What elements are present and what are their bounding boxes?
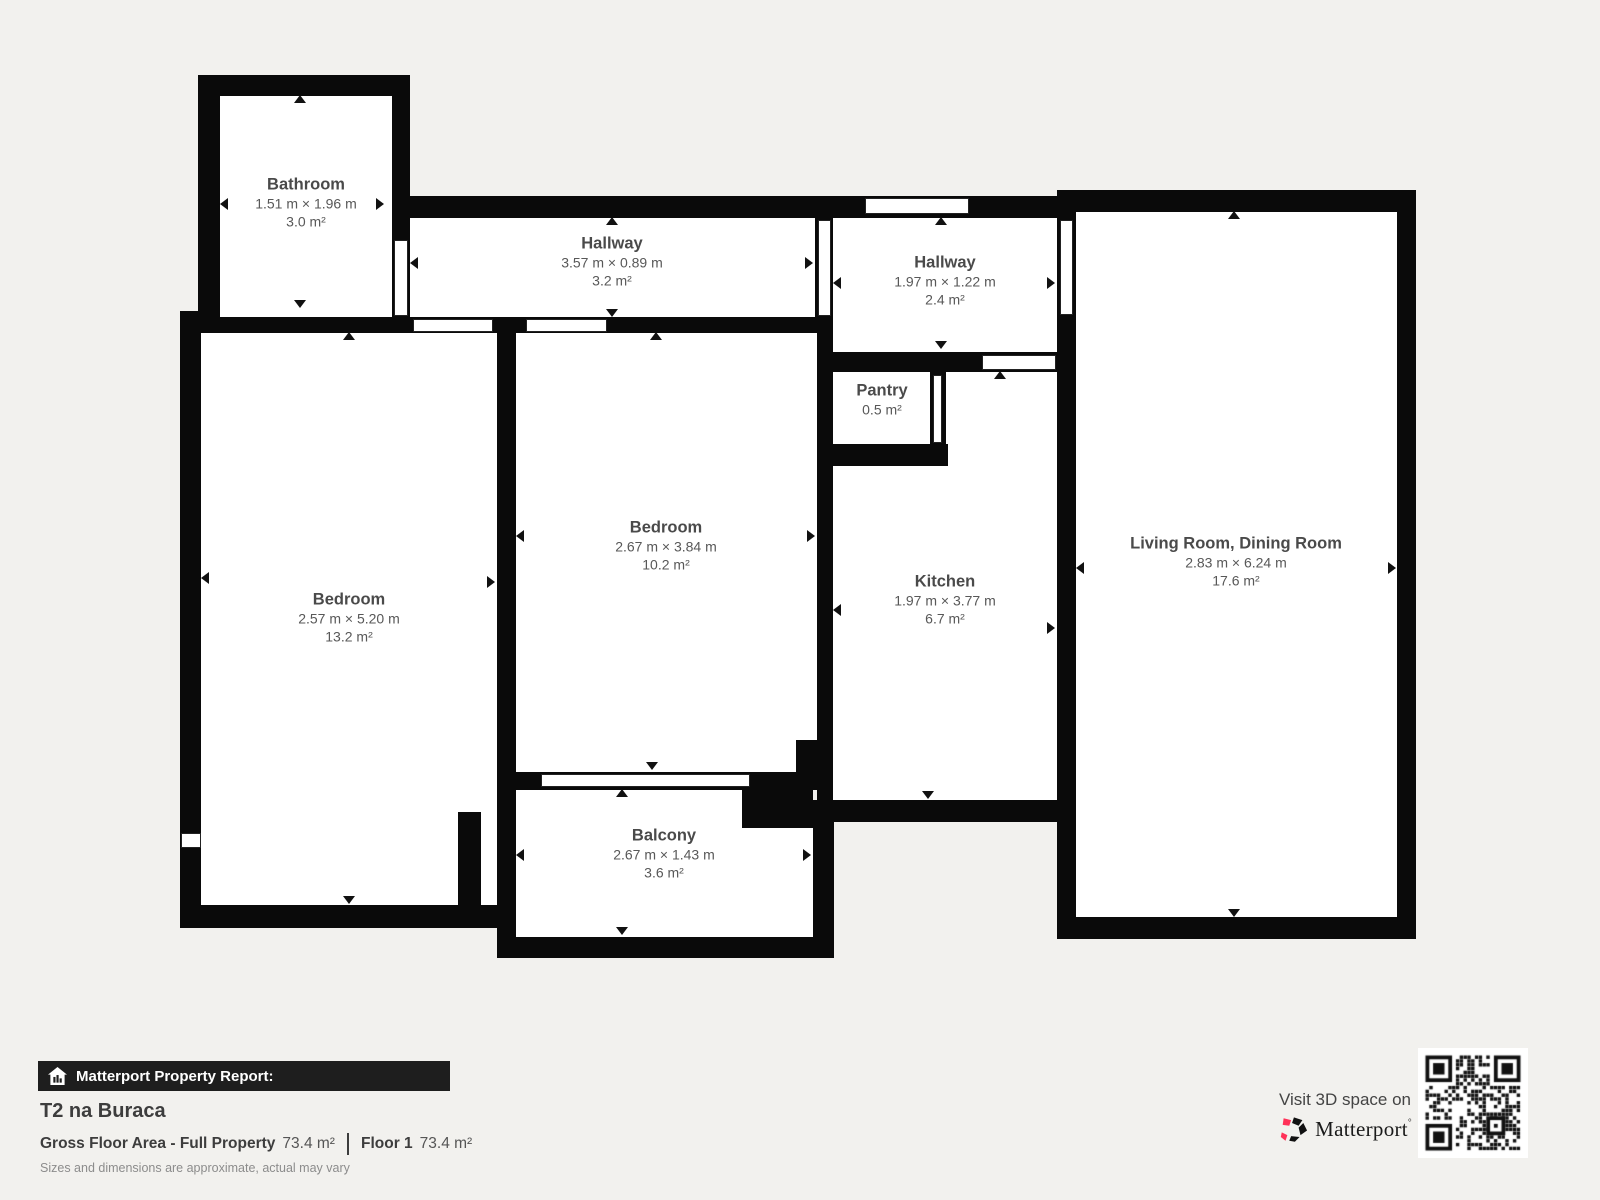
room-name: Bedroom <box>615 518 717 539</box>
room-dimensions: 1.51 m × 1.96 m <box>255 196 357 214</box>
room-area: 17.6 m² <box>1130 573 1342 591</box>
door-opening-hallways <box>818 220 831 316</box>
matterport-pinwheel-icon <box>1278 1116 1308 1143</box>
room-name: Bathroom <box>255 175 357 196</box>
room-label-balcony: Balcony 2.67 m × 1.43 m 3.6 m² <box>613 826 715 883</box>
room-label-bathroom: Bathroom 1.51 m × 1.96 m 3.0 m² <box>255 175 357 232</box>
room-area: 2.4 m² <box>894 292 996 310</box>
wall <box>742 790 813 828</box>
door-opening-pantry <box>933 375 942 443</box>
wall <box>1057 190 1416 212</box>
room-dimensions: 1.97 m × 3.77 m <box>894 593 996 611</box>
measure-arrow-right-icon <box>1047 622 1055 634</box>
wall <box>817 333 833 818</box>
measure-arrow-down-icon <box>343 896 355 904</box>
room-name: Bedroom <box>298 590 400 611</box>
measure-arrow-up-icon <box>935 217 947 225</box>
measure-arrow-up-icon <box>606 217 618 225</box>
measure-arrow-right-icon <box>376 198 384 210</box>
measure-arrow-left-icon <box>1076 562 1084 574</box>
room-label-bedroom-left: Bedroom 2.57 m × 5.20 m 13.2 m² <box>298 590 400 647</box>
wall <box>497 317 516 958</box>
room-dimensions: 2.67 m × 1.43 m <box>613 847 715 865</box>
measure-arrow-left-icon <box>833 277 841 289</box>
house-report-icon <box>48 1067 67 1085</box>
measure-arrow-right-icon <box>805 257 813 269</box>
floor-area-info: Gross Floor Area - Full Property 73.4 m²… <box>40 1133 472 1155</box>
measure-arrow-right-icon <box>803 849 811 861</box>
gross-floor-area-value: 73.4 m² <box>282 1135 335 1153</box>
window-opening-bedroom-left <box>181 833 201 848</box>
wall <box>198 75 408 96</box>
measure-arrow-left-icon <box>410 257 418 269</box>
wall <box>796 740 817 772</box>
floor-plan: Bathroom 1.51 m × 1.96 m 3.0 m² Hallway … <box>0 0 1600 1000</box>
room-dimensions: 3.57 m × 0.89 m <box>561 255 663 273</box>
room-dimensions: 1.97 m × 1.22 m <box>894 274 996 292</box>
matterport-wordmark: Matterport° <box>1315 1117 1412 1142</box>
report-banner-label: Matterport Property Report: <box>76 1068 274 1085</box>
room-name: Kitchen <box>894 572 996 593</box>
room-name: Hallway <box>894 253 996 274</box>
measure-arrow-down-icon <box>922 791 934 799</box>
room-label-living-dining: Living Room, Dining Room 2.83 m × 6.24 m… <box>1130 534 1342 591</box>
room-name: Balcony <box>613 826 715 847</box>
door-opening-bedroom-middle <box>526 319 607 332</box>
measure-arrow-left-icon <box>833 604 841 616</box>
measure-arrow-up-icon <box>994 371 1006 379</box>
wall <box>458 812 481 905</box>
measure-arrow-down-icon <box>935 341 947 349</box>
door-opening-living-room <box>1060 220 1073 315</box>
room-label-kitchen: Kitchen 1.97 m × 3.77 m 6.7 m² <box>894 572 996 629</box>
measure-arrow-down-icon <box>294 300 306 308</box>
door-opening-kitchen <box>982 355 1056 370</box>
wall <box>382 196 1076 218</box>
measure-arrow-left-icon <box>516 849 524 861</box>
room-area: 3.2 m² <box>561 273 663 291</box>
property-name: T2 na Buraca <box>40 1100 166 1123</box>
measure-arrow-right-icon <box>487 576 495 588</box>
measure-arrow-up-icon <box>343 332 355 340</box>
measure-arrow-down-icon <box>1228 909 1240 917</box>
measure-arrow-up-icon <box>1228 211 1240 219</box>
room-name: Living Room, Dining Room <box>1130 534 1342 555</box>
door-opening-entry <box>865 198 969 214</box>
wall <box>1057 917 1416 939</box>
room-area: 3.6 m² <box>613 865 715 883</box>
room-area: 0.5 m² <box>856 402 907 420</box>
wall <box>497 937 834 958</box>
measure-arrow-up-icon <box>294 95 306 103</box>
measure-arrow-left-icon <box>220 198 228 210</box>
wall <box>813 800 1076 822</box>
divider <box>347 1133 349 1155</box>
room-name: Hallway <box>561 234 663 255</box>
door-opening-bedroom-left <box>413 319 493 332</box>
room-area: 3.0 m² <box>255 214 357 232</box>
room-dimensions: 2.57 m × 5.20 m <box>298 611 400 629</box>
measure-arrow-right-icon <box>1388 562 1396 574</box>
wall <box>180 905 497 928</box>
wall <box>813 800 834 958</box>
floor-label: Floor 1 <box>361 1135 413 1153</box>
room-dimensions: 2.67 m × 3.84 m <box>615 539 717 557</box>
room-label-hallway-1: Hallway 3.57 m × 0.89 m 3.2 m² <box>561 234 663 291</box>
measure-arrow-right-icon <box>807 530 815 542</box>
measure-arrow-up-icon <box>650 332 662 340</box>
wall <box>817 444 948 466</box>
disclaimer-text: Sizes and dimensions are approximate, ac… <box>40 1161 350 1175</box>
room-area: 6.7 m² <box>894 611 996 629</box>
measure-arrow-down-icon <box>646 762 658 770</box>
room-label-hallway-2: Hallway 1.97 m × 1.22 m 2.4 m² <box>894 253 996 310</box>
report-banner: Matterport Property Report: <box>38 1061 450 1091</box>
room-label-bedroom-middle: Bedroom 2.67 m × 3.84 m 10.2 m² <box>615 518 717 575</box>
trademark-mark: ° <box>1408 1117 1412 1127</box>
measure-arrow-left-icon <box>201 572 209 584</box>
measure-arrow-down-icon <box>616 927 628 935</box>
qr-code <box>1418 1048 1528 1158</box>
measure-arrow-right-icon <box>1047 277 1055 289</box>
matterport-logo: Matterport° <box>1255 1116 1435 1143</box>
wall <box>1397 190 1416 939</box>
wall <box>198 75 220 333</box>
room-dimensions: 2.83 m × 6.24 m <box>1130 555 1342 573</box>
measure-arrow-left-icon <box>516 530 524 542</box>
measure-arrow-down-icon <box>606 309 618 317</box>
room-area: 10.2 m² <box>615 557 717 575</box>
room-label-pantry: Pantry 0.5 m² <box>856 380 907 419</box>
door-opening-balcony <box>541 774 750 787</box>
gross-floor-area-label: Gross Floor Area - Full Property <box>40 1135 275 1153</box>
visit-3d-label: Visit 3D space on <box>1255 1090 1435 1110</box>
room-name: Pantry <box>856 380 907 401</box>
measure-arrow-up-icon <box>616 789 628 797</box>
floor-value: 73.4 m² <box>420 1135 473 1153</box>
room-area: 13.2 m² <box>298 629 400 647</box>
door-opening-bathroom <box>394 240 408 316</box>
qr-card <box>1418 1048 1528 1158</box>
